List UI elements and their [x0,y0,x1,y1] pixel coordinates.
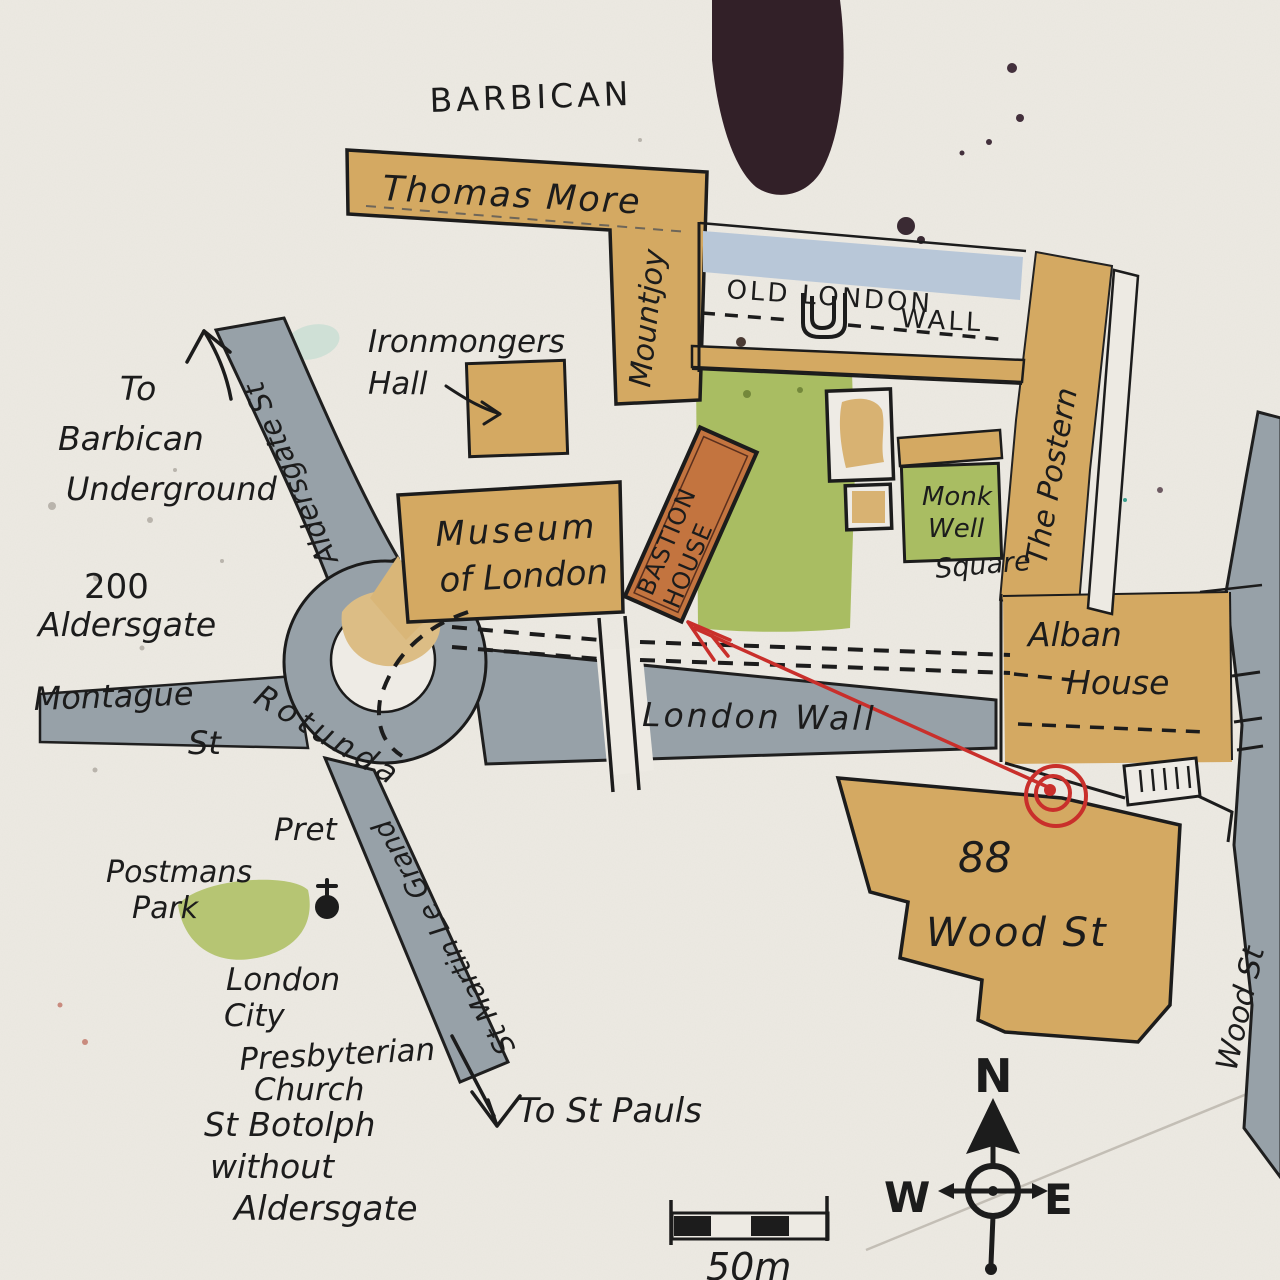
label-church-1: London [226,962,340,998]
label-ironmongers: Ironmongers [368,324,565,360]
label-to-barbican-2: Barbican [58,419,204,458]
label-museum: Museum [434,507,598,555]
watercolour-map: BARBICAN Thomas More Mountjoy OLD LONDON… [0,0,1280,1280]
label-200: 200 [84,567,149,607]
label-88: 88 [958,833,1011,882]
label-barbican: BARBICAN [429,74,633,120]
label-to-barbican-1: To [120,369,156,408]
compass-label-w: W [884,1173,930,1222]
label-montague: Montague [33,674,194,718]
label-to-st-pauls: To St Pauls [518,1091,702,1131]
compass-label-e: E [1044,1175,1073,1224]
label-88-wood-st: Wood St [926,910,1108,956]
scale-label: 50m [706,1245,791,1280]
building-museum-of-london [398,482,623,622]
label-montague-st: St [188,724,222,762]
compass-label-n: N [974,1049,1013,1103]
label-botolph-1: St Botolph [204,1105,375,1144]
steps-icon [1124,758,1200,805]
label-200-aldersgate: Aldersgate [36,605,216,644]
label-monkwell-2: Well [928,514,985,544]
label-old-london-wall: WALL [900,304,985,338]
church-icon [317,880,337,917]
label-monkwell-1: Monk [922,482,993,512]
label-postmans: Postmans [106,855,252,890]
green-monkwell [901,463,1001,561]
label-alban-house: House [1066,663,1169,702]
label-to-barbican-3: Underground [66,470,277,508]
label-botolph-3: Aldersgate [232,1189,418,1229]
label-church-2: City [224,998,285,1034]
map-canvas: BARBICAN Thomas More Mountjoy OLD LONDON… [0,0,1280,1280]
label-pret: Pret [274,812,339,848]
label-church-4: Church [254,1072,364,1108]
building-ironmongers-hall [466,360,567,456]
red-target-dot [1044,784,1056,796]
label-ironmongers-hall: Hall [368,366,428,402]
label-botolph-2: without [210,1147,335,1186]
label-alban: Alban [1026,615,1122,654]
label-london-wall-road: London Wall [642,695,877,738]
label-postmans-park: Park [132,891,200,926]
